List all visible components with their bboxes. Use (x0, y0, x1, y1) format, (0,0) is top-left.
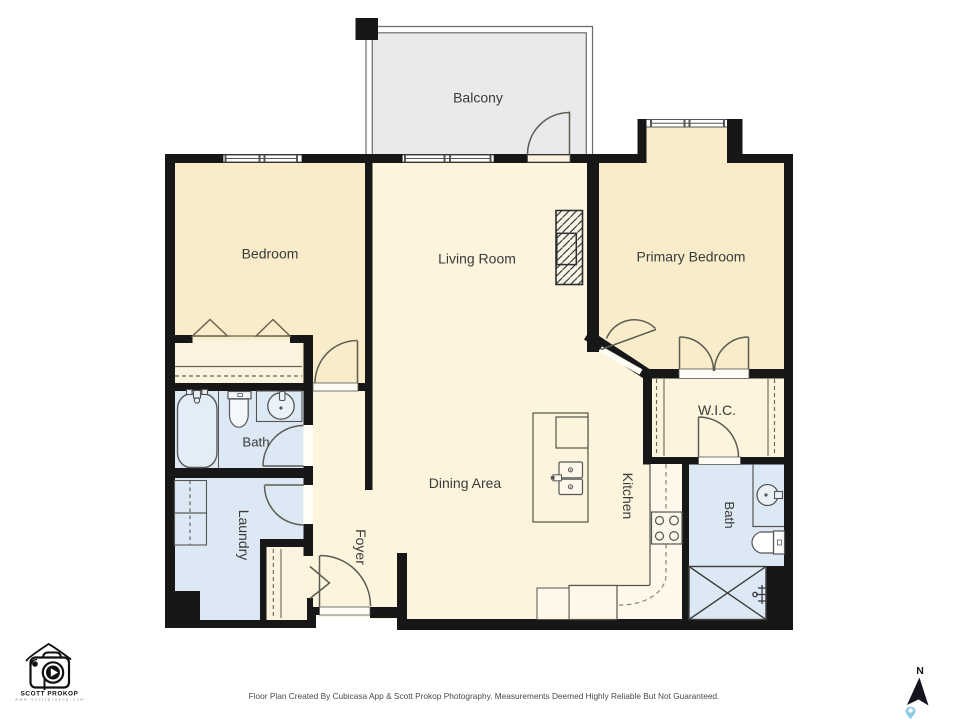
svg-text:Bath: Bath (242, 435, 269, 450)
svg-text:N: N (916, 665, 924, 677)
svg-text:Bedroom: Bedroom (242, 246, 299, 262)
svg-text:Laundry: Laundry (236, 510, 252, 561)
svg-text:Foyer: Foyer (353, 529, 369, 565)
svg-text:Primary Bedroom: Primary Bedroom (637, 249, 746, 265)
svg-text:W.I.C.: W.I.C. (698, 402, 736, 418)
svg-text:w w w . s c o t t p r o k o p: w w w . s c o t t p r o k o p . c o m (15, 697, 84, 701)
svg-text:Balcony: Balcony (453, 90, 503, 106)
svg-text:Living Room: Living Room (438, 251, 516, 267)
svg-text:Kitchen: Kitchen (620, 473, 636, 520)
svg-text:Bath: Bath (722, 501, 737, 528)
svg-text:Floor Plan Created By Cubicasa: Floor Plan Created By Cubicasa App & Sco… (249, 691, 720, 701)
svg-text:Dining Area: Dining Area (429, 475, 502, 491)
